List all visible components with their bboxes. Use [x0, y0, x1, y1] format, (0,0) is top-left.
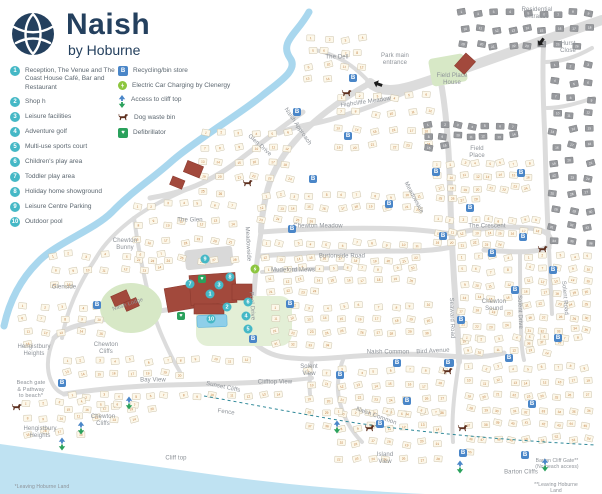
- map-label: *Leaving Hoburne Land: [15, 484, 70, 490]
- dog-waste-icon: [365, 424, 376, 432]
- legend-item-8: 8Holiday home showground: [10, 187, 122, 197]
- number-marker-icon: 4: [10, 127, 20, 137]
- map-label: Naish Common: [367, 349, 410, 356]
- map-marker-5: 5: [244, 325, 253, 334]
- map-label: Barton Cliffs: [504, 469, 538, 476]
- recycling-point: B: [459, 449, 467, 457]
- cliff-access-icon: [125, 397, 133, 410]
- map-marker-9: 9: [201, 255, 210, 264]
- map-label: Fence: [217, 408, 235, 418]
- dog-waste-icon: [12, 403, 23, 411]
- map-label: Hurst Close: [560, 41, 576, 55]
- cliff-access-point: [77, 422, 85, 435]
- recycling-icon: B: [385, 200, 393, 208]
- number-marker-icon: 1: [206, 290, 215, 299]
- map-label: Chewton Cliffs: [94, 342, 118, 356]
- map-label: Seaward Road: [447, 297, 456, 338]
- legend-item-6: 6Children's play area: [10, 157, 122, 167]
- dog-waste-bin: [12, 403, 23, 411]
- legend-item-label: Toddler play area: [25, 172, 75, 181]
- recycling-point: B: [403, 397, 411, 405]
- map-label: Field Place: [469, 146, 485, 160]
- recycling-point: B: [93, 301, 101, 309]
- number-marker-icon: 2: [10, 97, 20, 107]
- recycling-point: B: [432, 168, 440, 176]
- map-label: Burtonside Road: [319, 253, 365, 260]
- recycling-point: B: [444, 359, 452, 367]
- cliff-access-point: [58, 438, 66, 451]
- map-label: Field Place House: [437, 73, 468, 87]
- recycling-point: B: [511, 286, 519, 294]
- legend-item-ev-charging: Electric Car Charging by Clenergy: [118, 81, 258, 90]
- map-label: Island View: [377, 452, 394, 466]
- map-label: Park main entrance: [381, 53, 409, 67]
- map-marker-4: 4: [242, 312, 251, 321]
- map-label: Highcliffe Meadow: [340, 96, 391, 110]
- map-label: Chewton Sound: [482, 299, 506, 313]
- legend-item-4: 4Adventure golf: [10, 127, 122, 137]
- recycling-point: B: [457, 316, 465, 324]
- legend-item-label: Adventure golf: [25, 127, 67, 136]
- dog-waste-bin: [365, 424, 376, 432]
- number-marker-icon: 1: [10, 66, 20, 76]
- legend-item-label: Defibrillator: [133, 128, 166, 137]
- recycling-icon: B: [288, 225, 296, 233]
- legend-item-label: Holiday home showground: [25, 187, 102, 196]
- number-marker-icon: 9: [201, 255, 210, 264]
- number-marker-icon: 5: [10, 142, 20, 152]
- map-marker-7: 7: [186, 280, 195, 289]
- park-title: Naish: [66, 10, 150, 40]
- recycling-icon: B: [336, 371, 344, 379]
- dog-waste-icon: [538, 245, 549, 253]
- cliff-access-icon: [77, 422, 85, 435]
- defibrillator-icon: ♥: [118, 128, 128, 138]
- dog-waste-bin: [243, 179, 254, 187]
- recycling-icon: B: [118, 66, 128, 76]
- map-label: Hengistbury Heights: [17, 344, 50, 358]
- map-label: The Dell: [325, 54, 348, 61]
- map-label: Solent Drive: [515, 295, 523, 329]
- map-label: Bird Avenue: [416, 348, 450, 357]
- map-marker-3: 3: [215, 281, 224, 290]
- entrance-arrow: [535, 36, 548, 49]
- defibrillator-icon: ♥: [177, 312, 185, 320]
- legend-item-label: Leisure Centre Parking: [25, 202, 91, 211]
- dog-waste-icon: [243, 179, 254, 187]
- legend-item-defibrillator: ♥Defibrillator: [118, 128, 258, 138]
- cliff-access-icon: [333, 421, 341, 434]
- recycling-point: B: [286, 300, 294, 308]
- map-label: Hengistbury Heights: [23, 426, 56, 440]
- map-marker-1: 1: [206, 290, 215, 299]
- map-label: The Glen: [177, 217, 202, 224]
- map-label: Residential entrance: [522, 7, 553, 21]
- recycling-icon: B: [457, 316, 465, 324]
- recycling-point: B: [505, 354, 513, 362]
- cliff-access-point: [125, 397, 133, 410]
- cliff-access-icon: [541, 459, 549, 472]
- number-marker-icon: 6: [244, 298, 253, 307]
- dog-waste-bin: [342, 89, 353, 97]
- cliff-access-icon: [58, 438, 66, 451]
- legend-item-label: Shop h: [25, 97, 46, 106]
- dog-waste-bin: [458, 424, 469, 432]
- map-label: Chewton Meadow: [293, 223, 342, 230]
- recycling-icon: B: [93, 301, 101, 309]
- recycling-icon: B: [521, 451, 529, 459]
- recycling-point: B: [521, 451, 529, 459]
- recycling-point: B: [517, 169, 525, 177]
- recycling-icon: B: [393, 359, 401, 367]
- recycling-point: B: [488, 249, 496, 257]
- legend-item-label: Electric Car Charging by Clenergy: [132, 81, 230, 90]
- recycling-icon: B: [344, 132, 352, 140]
- recycling-point: B: [58, 379, 66, 387]
- dog-waste-icon: [342, 89, 353, 97]
- map-marker-6: 6: [244, 298, 253, 307]
- cliff-access-point: [456, 461, 464, 474]
- recycling-icon: B: [444, 359, 452, 367]
- recycling-point: B: [336, 371, 344, 379]
- legend-item-label: Multi-use sports court: [25, 142, 87, 151]
- recycling-icon: B: [432, 168, 440, 176]
- dog-waste-bin: [443, 367, 454, 375]
- legend-item-3: 3Leisure facilities: [10, 112, 122, 122]
- number-marker-icon: 8: [226, 273, 235, 282]
- ev-charging-icon: [118, 81, 127, 90]
- recycling-icon: B: [466, 204, 474, 212]
- number-marker-icon: 6: [10, 157, 20, 167]
- park-map-page: 1234567891011121314123456789101112131415…: [0, 0, 602, 494]
- recycling-icon: B: [517, 169, 525, 177]
- number-marker-icon: 8: [10, 187, 20, 197]
- recycling-point: B: [293, 108, 301, 116]
- map-label: Cliff top: [165, 455, 186, 462]
- map-label: Solent Road: [559, 281, 569, 316]
- number-marker-icon: 3: [215, 281, 224, 290]
- legend-item-2: 2Shop h: [10, 97, 122, 107]
- recycling-point: B: [309, 175, 317, 183]
- number-marker-icon: 5: [244, 325, 253, 334]
- map-marker-2: 2: [223, 303, 232, 312]
- recycling-point: B: [519, 233, 527, 241]
- map-label: Solent View: [300, 364, 318, 378]
- cliff-access-point: [333, 421, 341, 434]
- recycling-icon: B: [519, 233, 527, 241]
- number-marker-icon: 2: [223, 303, 232, 312]
- recycling-icon: B: [58, 379, 66, 387]
- recycling-icon: B: [459, 449, 467, 457]
- recycling-point: B: [439, 232, 447, 240]
- recycling-icon: B: [249, 335, 257, 343]
- legend-item-1: 1Reception, The Venue and The Coast Hous…: [10, 66, 122, 92]
- map-label: Clifftop View: [258, 379, 292, 386]
- map-marker-8: 8: [226, 273, 235, 282]
- park-logo: Naish by Hoburne: [10, 10, 150, 58]
- map-label: Beach gate & Pathway to beach*: [17, 380, 46, 400]
- legend-item-5: 5Multi-use sports court: [10, 142, 122, 152]
- recycling-point: B: [385, 200, 393, 208]
- recycling-icon: B: [309, 175, 317, 183]
- recycling-icon: B: [554, 334, 562, 342]
- map-label: Chewton Cliffs: [91, 414, 115, 428]
- recycling-point: B: [249, 335, 257, 343]
- map-label: Chewton Bunny: [113, 238, 137, 252]
- recycling-point: B: [466, 204, 474, 212]
- legend-item-9: 9Leisure Centre Parking: [10, 202, 122, 212]
- map-label: Meadowside: [402, 181, 425, 215]
- defibrillator-icon: ♥: [198, 275, 206, 283]
- legend-icon-list: BRecycling/bin storeElectric Car Chargin…: [118, 66, 258, 143]
- recycling-point: B: [549, 266, 557, 274]
- map-label: Mudeford Mews: [271, 267, 315, 274]
- hoburne-logo-icon: [10, 11, 56, 57]
- map-label: Naish Lodge: [112, 297, 144, 313]
- number-marker-icon: 3: [10, 112, 20, 122]
- legend-item-label: Children's play area: [25, 157, 82, 166]
- legend-item-7: 7Toddler play area: [10, 172, 122, 182]
- number-marker-icon: 7: [186, 280, 195, 289]
- map-label: Bay View: [140, 377, 166, 384]
- legend-item-label: Reception, The Venue and The Coast House…: [25, 66, 122, 92]
- legend-item-label: Access to cliff top: [131, 95, 181, 104]
- entrance-arrow: [372, 78, 384, 90]
- recycling-icon: B: [286, 300, 294, 308]
- dog-waste-icon: [443, 367, 454, 375]
- park-subtitle: by Hoburne: [68, 42, 150, 58]
- ev-charging-point: [251, 265, 260, 274]
- number-marker-icon: 4: [242, 312, 251, 321]
- legend-numbered-list: 1Reception, The Venue and The Coast Hous…: [10, 66, 122, 232]
- recycling-icon: B: [349, 74, 357, 82]
- recycling-point: B: [288, 225, 296, 233]
- legend-item-10: 10Outdoor pool: [10, 217, 122, 227]
- legend-item-label: Leisure facilities: [25, 112, 71, 121]
- number-marker-icon: 10: [10, 217, 20, 227]
- recycling-icon: B: [528, 400, 536, 408]
- recycling-icon: B: [293, 108, 301, 116]
- number-marker-icon: 10: [207, 315, 216, 324]
- recycling-icon: B: [439, 232, 447, 240]
- legend-item-label: Recycling/bin store: [133, 66, 188, 75]
- recycling-icon: B: [488, 249, 496, 257]
- cliff-access-icon: [456, 461, 464, 474]
- entrance-arrow-icon: [535, 36, 548, 49]
- legend-item-label: Outdoor pool: [25, 217, 63, 226]
- ev-charging-icon: [251, 265, 260, 274]
- dog-waste-icon: [458, 424, 469, 432]
- recycling-icon: B: [505, 354, 513, 362]
- recycling-icon: B: [549, 266, 557, 274]
- map-label: Meadowside: [243, 226, 252, 261]
- map-label: The Crescent: [468, 223, 505, 230]
- recycling-point: B: [554, 334, 562, 342]
- recycling-point: B: [349, 74, 357, 82]
- legend-item-cliff-access: Access to cliff top: [118, 95, 258, 108]
- recycling-icon: B: [376, 420, 384, 428]
- recycling-point: B: [344, 132, 352, 140]
- recycling-point: B: [376, 420, 384, 428]
- dog-waste-bin: [538, 245, 549, 253]
- number-marker-icon: 9: [10, 202, 20, 212]
- cliff-access-point: [541, 459, 549, 472]
- recycling-point: B: [528, 400, 536, 408]
- cliff-access-icon: [118, 95, 126, 108]
- number-marker-icon: 7: [10, 172, 20, 182]
- dog-waste-icon: [118, 113, 129, 121]
- map-marker-10: 10: [207, 315, 216, 324]
- legend-item-label: Dog waste bin: [134, 113, 175, 122]
- recycling-icon: B: [511, 286, 519, 294]
- recycling-icon: B: [403, 397, 411, 405]
- entrance-arrow-icon: [372, 78, 384, 90]
- defibrillator-point: ♥: [177, 312, 185, 320]
- map-label: Glenside: [52, 284, 76, 291]
- legend-item-dog-waste: Dog waste bin: [118, 113, 258, 122]
- map-label: Sunset Cliffs: [205, 381, 241, 395]
- recycling-point: B: [393, 359, 401, 367]
- defibrillator-point: ♥: [198, 275, 206, 283]
- legend-item-recycling: BRecycling/bin store: [118, 66, 258, 76]
- map-label: **Leaving Hoburne Land: [533, 482, 579, 494]
